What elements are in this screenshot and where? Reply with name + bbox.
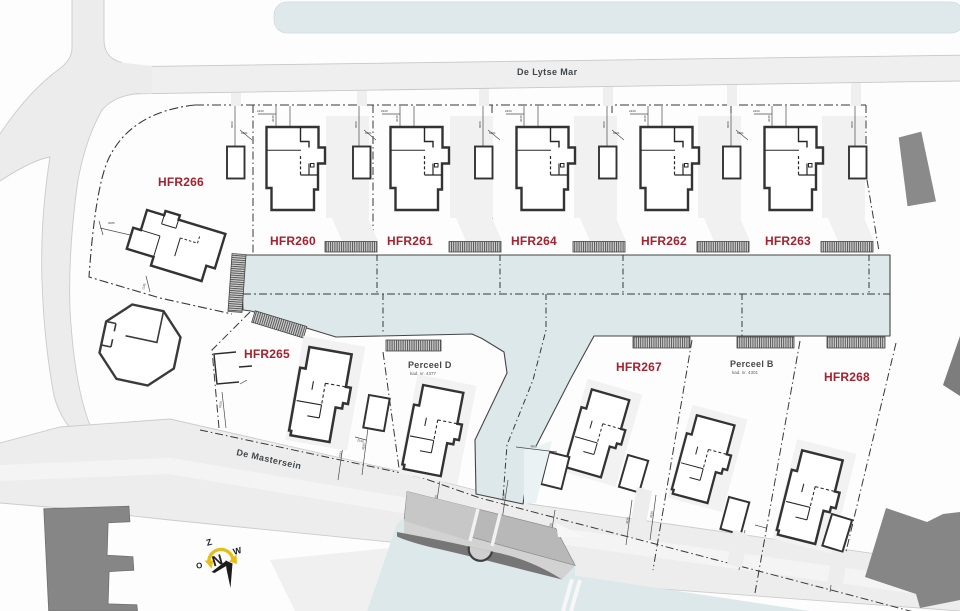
svg-text:6000: 6000 (478, 121, 482, 128)
svg-text:HFR267: HFR267 (616, 360, 662, 374)
svg-text:3040: 3040 (271, 115, 275, 122)
svg-text:6000: 6000 (354, 121, 358, 128)
svg-text:6000: 6000 (230, 121, 234, 128)
svg-text:HFR265: HFR265 (244, 347, 290, 361)
svg-text:2220: 2220 (257, 109, 264, 113)
svg-text:3005: 3005 (108, 221, 115, 225)
svg-text:1001: 1001 (613, 131, 620, 135)
svg-text:HFR260: HFR260 (270, 234, 316, 248)
svg-text:2220: 2220 (381, 109, 388, 113)
svg-text:Perceel B: Perceel B (730, 359, 774, 369)
svg-text:6000: 6000 (726, 121, 730, 128)
svg-text:1001: 1001 (489, 131, 496, 135)
svg-text:3040: 3040 (643, 115, 647, 122)
svg-text:2220: 2220 (753, 109, 760, 113)
svg-text:Perceel D: Perceel D (408, 360, 452, 370)
svg-text:2220: 2220 (629, 109, 636, 113)
svg-text:3040: 3040 (519, 115, 523, 122)
svg-text:HFR263: HFR263 (765, 234, 811, 248)
svg-text:1001: 1001 (737, 131, 744, 135)
svg-text:HFR266: HFR266 (158, 175, 204, 189)
svg-text:6000: 6000 (850, 121, 854, 128)
svg-text:6000: 6000 (602, 121, 606, 128)
svg-text:1001: 1001 (241, 131, 248, 135)
svg-text:2220: 2220 (505, 109, 512, 113)
svg-text:HFR261: HFR261 (387, 234, 433, 248)
svg-text:1001: 1001 (365, 131, 372, 135)
svg-text:kad. nr. 4301: kad. nr. 4301 (732, 370, 759, 375)
svg-text:3040: 3040 (767, 115, 771, 122)
svg-text:3040: 3040 (395, 115, 399, 122)
svg-text:HFR262: HFR262 (641, 234, 687, 248)
svg-text:De Lytse Mar: De Lytse Mar (517, 67, 578, 77)
svg-text:kad. nr. 4377: kad. nr. 4377 (410, 371, 437, 376)
svg-text:HFR268: HFR268 (824, 370, 870, 384)
svg-text:HFR264: HFR264 (511, 234, 557, 248)
svg-text:4650: 4650 (530, 444, 537, 449)
